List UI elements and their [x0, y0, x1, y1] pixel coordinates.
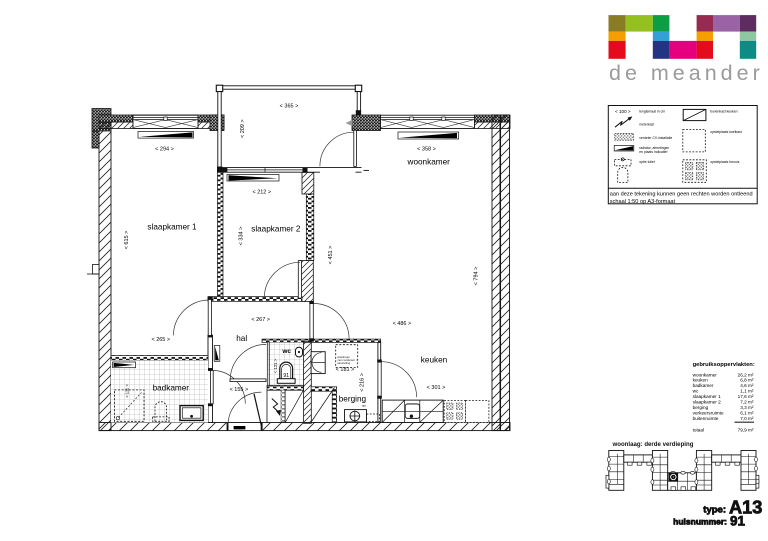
svg-text:woonkamer: woonkamer — [407, 158, 451, 167]
svg-text:< 301 >: < 301 > — [427, 385, 446, 391]
svg-text:gebruiksoppervlakten:: gebruiksoppervlakten: — [693, 362, 755, 368]
svg-text:totaal: totaal — [693, 428, 704, 433]
svg-text:< 111 >: < 111 > — [125, 384, 130, 398]
svg-text:aan deze tekening kunnen geen: aan deze tekening kunnen geen rechten wo… — [610, 191, 753, 197]
svg-text:bovenkast keuken: bovenkast keuken — [710, 110, 737, 114]
svg-text:keuken: keuken — [421, 356, 448, 365]
svg-text:badkamer: badkamer — [693, 383, 714, 388]
svg-text:slaapkamer 1: slaapkamer 1 — [693, 394, 722, 399]
svg-text:type:: type: — [703, 505, 726, 516]
svg-text:< 181 >: < 181 > — [336, 367, 355, 373]
svg-text:buitenruimte: buitenruimte — [693, 416, 719, 421]
svg-text:wc: wc — [281, 348, 291, 355]
svg-text:opt: opt — [362, 404, 366, 408]
svg-text:woonkamer: woonkamer — [693, 372, 718, 377]
svg-text:< 486 >: < 486 > — [393, 321, 412, 327]
svg-text:< 294 >: < 294 > — [155, 147, 174, 153]
svg-text:meterkast: meterkast — [639, 123, 654, 127]
svg-text:verkeersruimte: verkeersruimte — [693, 410, 724, 415]
svg-text:1,1 m²: 1,1 m² — [740, 389, 754, 394]
svg-text:< 794 >: < 794 > — [474, 267, 480, 286]
svg-text:< 365 >: < 365 > — [280, 104, 299, 110]
svg-text:79,9 m²: 79,9 m² — [738, 428, 754, 433]
svg-text:slaapkamer 2: slaapkamer 2 — [251, 225, 301, 234]
svg-text:verdeler CV-installatie: verdeler CV-installatie — [639, 136, 672, 140]
svg-text:opstelplaats fornuis: opstelplaats fornuis — [710, 160, 740, 164]
svg-text:berging: berging — [693, 405, 709, 410]
svg-text:wc: wc — [693, 389, 699, 394]
svg-text:slaapkamer 1: slaapkamer 1 — [147, 223, 197, 232]
svg-text:< 155 >: < 155 > — [230, 387, 249, 393]
svg-text:lengtemaat in cm: lengtemaat in cm — [639, 110, 665, 114]
svg-text:de meander: de meander — [609, 61, 764, 85]
svg-text:hal: hal — [236, 334, 247, 343]
svg-text:< 267 >: < 267 > — [251, 317, 270, 323]
svg-text:17,6 m²: 17,6 m² — [738, 394, 754, 399]
svg-text:slaapkamer 2: slaapkamer 2 — [693, 399, 722, 404]
svg-text:< 216 >: < 216 > — [360, 373, 366, 392]
svg-text:< 334 >: < 334 > — [239, 227, 245, 246]
svg-text:< 615 >: < 615 > — [124, 231, 130, 250]
svg-text:optie toilet: optie toilet — [639, 160, 655, 164]
svg-text:26,2 m²: 26,2 m² — [738, 372, 754, 377]
svg-text:< 212 >: < 212 > — [252, 190, 271, 196]
svg-text:< 209 >: < 209 > — [240, 119, 246, 138]
svg-text:en plaats indicatief: en plaats indicatief — [639, 150, 667, 154]
svg-text:3,3 m²: 3,3 m² — [740, 405, 754, 410]
svg-text:< 451 >: < 451 > — [328, 246, 334, 265]
svg-text:4,6 m²: 4,6 m² — [740, 383, 754, 388]
svg-text:6,1 m²: 6,1 m² — [740, 410, 754, 415]
svg-text:huisnummer:: huisnummer: — [673, 517, 727, 527]
svg-text:6,8 m²: 6,8 m² — [740, 378, 754, 383]
svg-text:opstelplaats koelkast: opstelplaats koelkast — [710, 130, 742, 134]
svg-text:91: 91 — [283, 373, 289, 379]
svg-text:woonlaag: derde verdieping: woonlaag: derde verdieping — [612, 441, 694, 448]
svg-text:< 358 >: < 358 > — [417, 146, 436, 152]
svg-text:keuken: keuken — [693, 378, 709, 383]
svg-text:schaal 1:50 op A3-formaat: schaal 1:50 op A3-formaat — [610, 199, 676, 205]
svg-text:7,0 m²: 7,0 m² — [740, 416, 754, 421]
svg-text:< 121 >: < 121 > — [273, 358, 278, 373]
svg-text:aansluiting: aansluiting — [337, 361, 350, 365]
svg-text:berging: berging — [339, 395, 367, 404]
svg-text:< 100 >: < 100 > — [615, 109, 631, 114]
svg-text:< 265 >: < 265 > — [151, 337, 170, 343]
svg-text:91: 91 — [730, 513, 746, 528]
svg-text:badkamer: badkamer — [153, 384, 190, 393]
svg-text:7,2 m²: 7,2 m² — [740, 399, 754, 404]
